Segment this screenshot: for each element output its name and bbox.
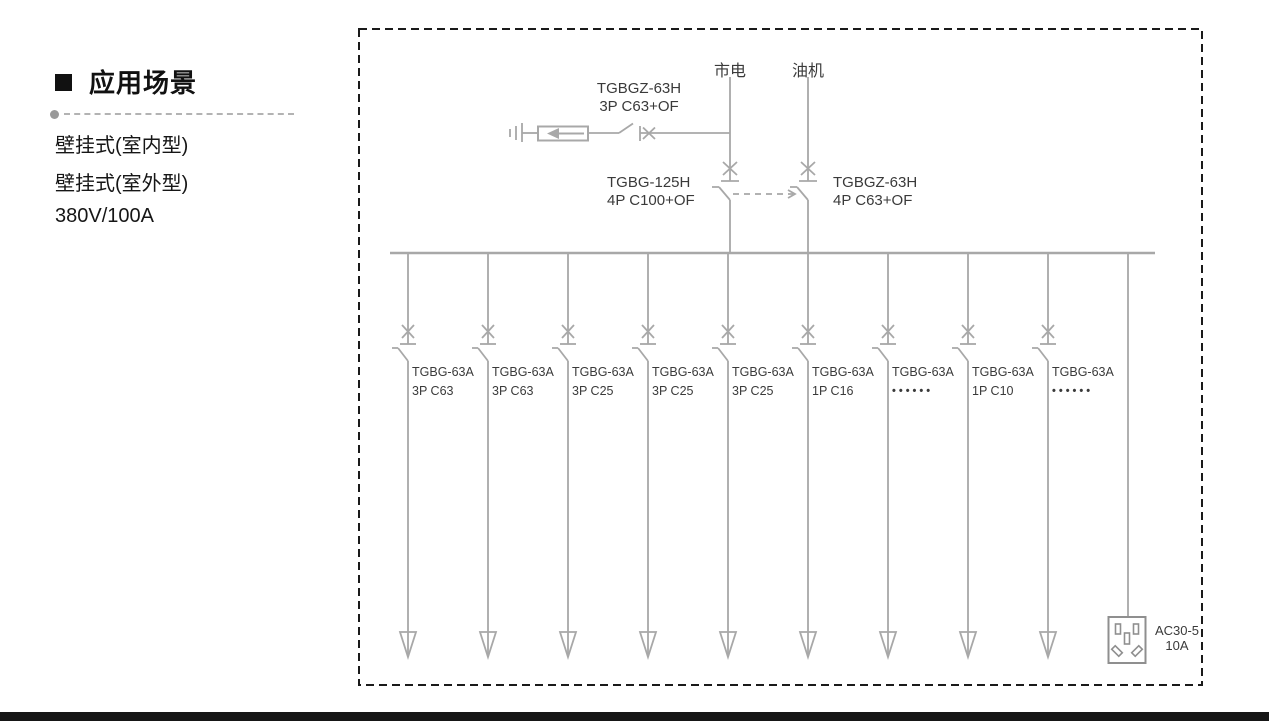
branch-label: TGBG-63A •••••• [892, 363, 970, 401]
branch-spec: 1P C10 [972, 382, 1050, 401]
generator-breaker-model: TGBGZ-63H [833, 174, 917, 192]
socket-symbol [1109, 617, 1146, 663]
mains-label: 市电 [700, 57, 760, 81]
mains-breaker-icon [712, 77, 739, 253]
branch-model: TGBG-63A [732, 363, 810, 382]
branch-spec: 3P C25 [732, 382, 810, 401]
feeder-branch-icon [632, 254, 656, 657]
bottom-bar [0, 712, 1269, 721]
socket-rating: 10A [1149, 638, 1205, 653]
branch-spec: •••••• [1052, 382, 1130, 401]
main-breaker-label: TGBG-125H 4P C100+OF [607, 174, 695, 209]
branch-label: TGBG-63A 1P C16 [812, 363, 890, 401]
branch-model: TGBG-63A [572, 363, 650, 382]
branch-spec: 1P C16 [812, 382, 890, 401]
ground-icon [510, 123, 522, 142]
spd-breaker-spec: 3P C63+OF [576, 98, 702, 116]
branch-model: TGBG-63A [1052, 363, 1130, 382]
branch-model: TGBG-63A [412, 363, 490, 382]
branch-spec: 3P C63 [492, 382, 570, 401]
feeder-branch-icon [952, 254, 976, 657]
socket-label: AC30-5 10A [1149, 623, 1205, 653]
branch-label: TGBG-63A 3P C63 [492, 363, 570, 401]
branch-label: TGBG-63A •••••• [1052, 363, 1130, 401]
branch-spec: 3P C63 [412, 382, 490, 401]
feeder-branch-icon [552, 254, 576, 657]
branch-model: TGBG-63A [652, 363, 730, 382]
generator-breaker-label: TGBGZ-63H 4P C63+OF [833, 174, 917, 209]
feeder-branch-icon [392, 254, 416, 657]
branch-model: TGBG-63A [812, 363, 890, 382]
generator-breaker-spec: 4P C63+OF [833, 192, 917, 210]
branch-label: TGBG-63A 3P C25 [732, 363, 810, 401]
feeder-branch-icon [472, 254, 496, 657]
branch-label: TGBG-63A 3P C25 [572, 363, 650, 401]
feeder-branch-icon [792, 254, 816, 657]
branch-label: TGBG-63A 3P C25 [652, 363, 730, 401]
branch-label: TGBG-63A 1P C10 [972, 363, 1050, 401]
main-breaker-spec: 4P C100+OF [607, 192, 695, 210]
spd-breaker-label: TGBGZ-63H 3P C63+OF [576, 80, 702, 115]
application-scenarios-page: 应用场景 壁挂式(室内型) 壁挂式(室外型) 380V/100A [0, 0, 1269, 721]
feeder-branch-icon [872, 254, 896, 657]
interlock-link [733, 190, 795, 198]
branch-spec: 3P C25 [652, 382, 730, 401]
spd-branch [510, 123, 730, 142]
branch-label: TGBG-63A 3P C63 [412, 363, 490, 401]
feeder-branch-icon [712, 254, 736, 657]
spd-arrow-icon [547, 128, 559, 139]
branch-spec: •••••• [892, 382, 970, 401]
spd-breaker-model: TGBGZ-63H [576, 80, 702, 98]
generator-breaker-icon [790, 77, 817, 253]
branch-model: TGBG-63A [892, 363, 970, 382]
feeder-branch-icon [1032, 254, 1056, 657]
main-breaker-model: TGBG-125H [607, 174, 695, 192]
generator-label: 油机 [778, 57, 838, 81]
branch-model: TGBG-63A [972, 363, 1050, 382]
branch-spec: 3P C25 [572, 382, 650, 401]
branch-model: TGBG-63A [492, 363, 570, 382]
socket-model: AC30-5 [1149, 623, 1205, 638]
